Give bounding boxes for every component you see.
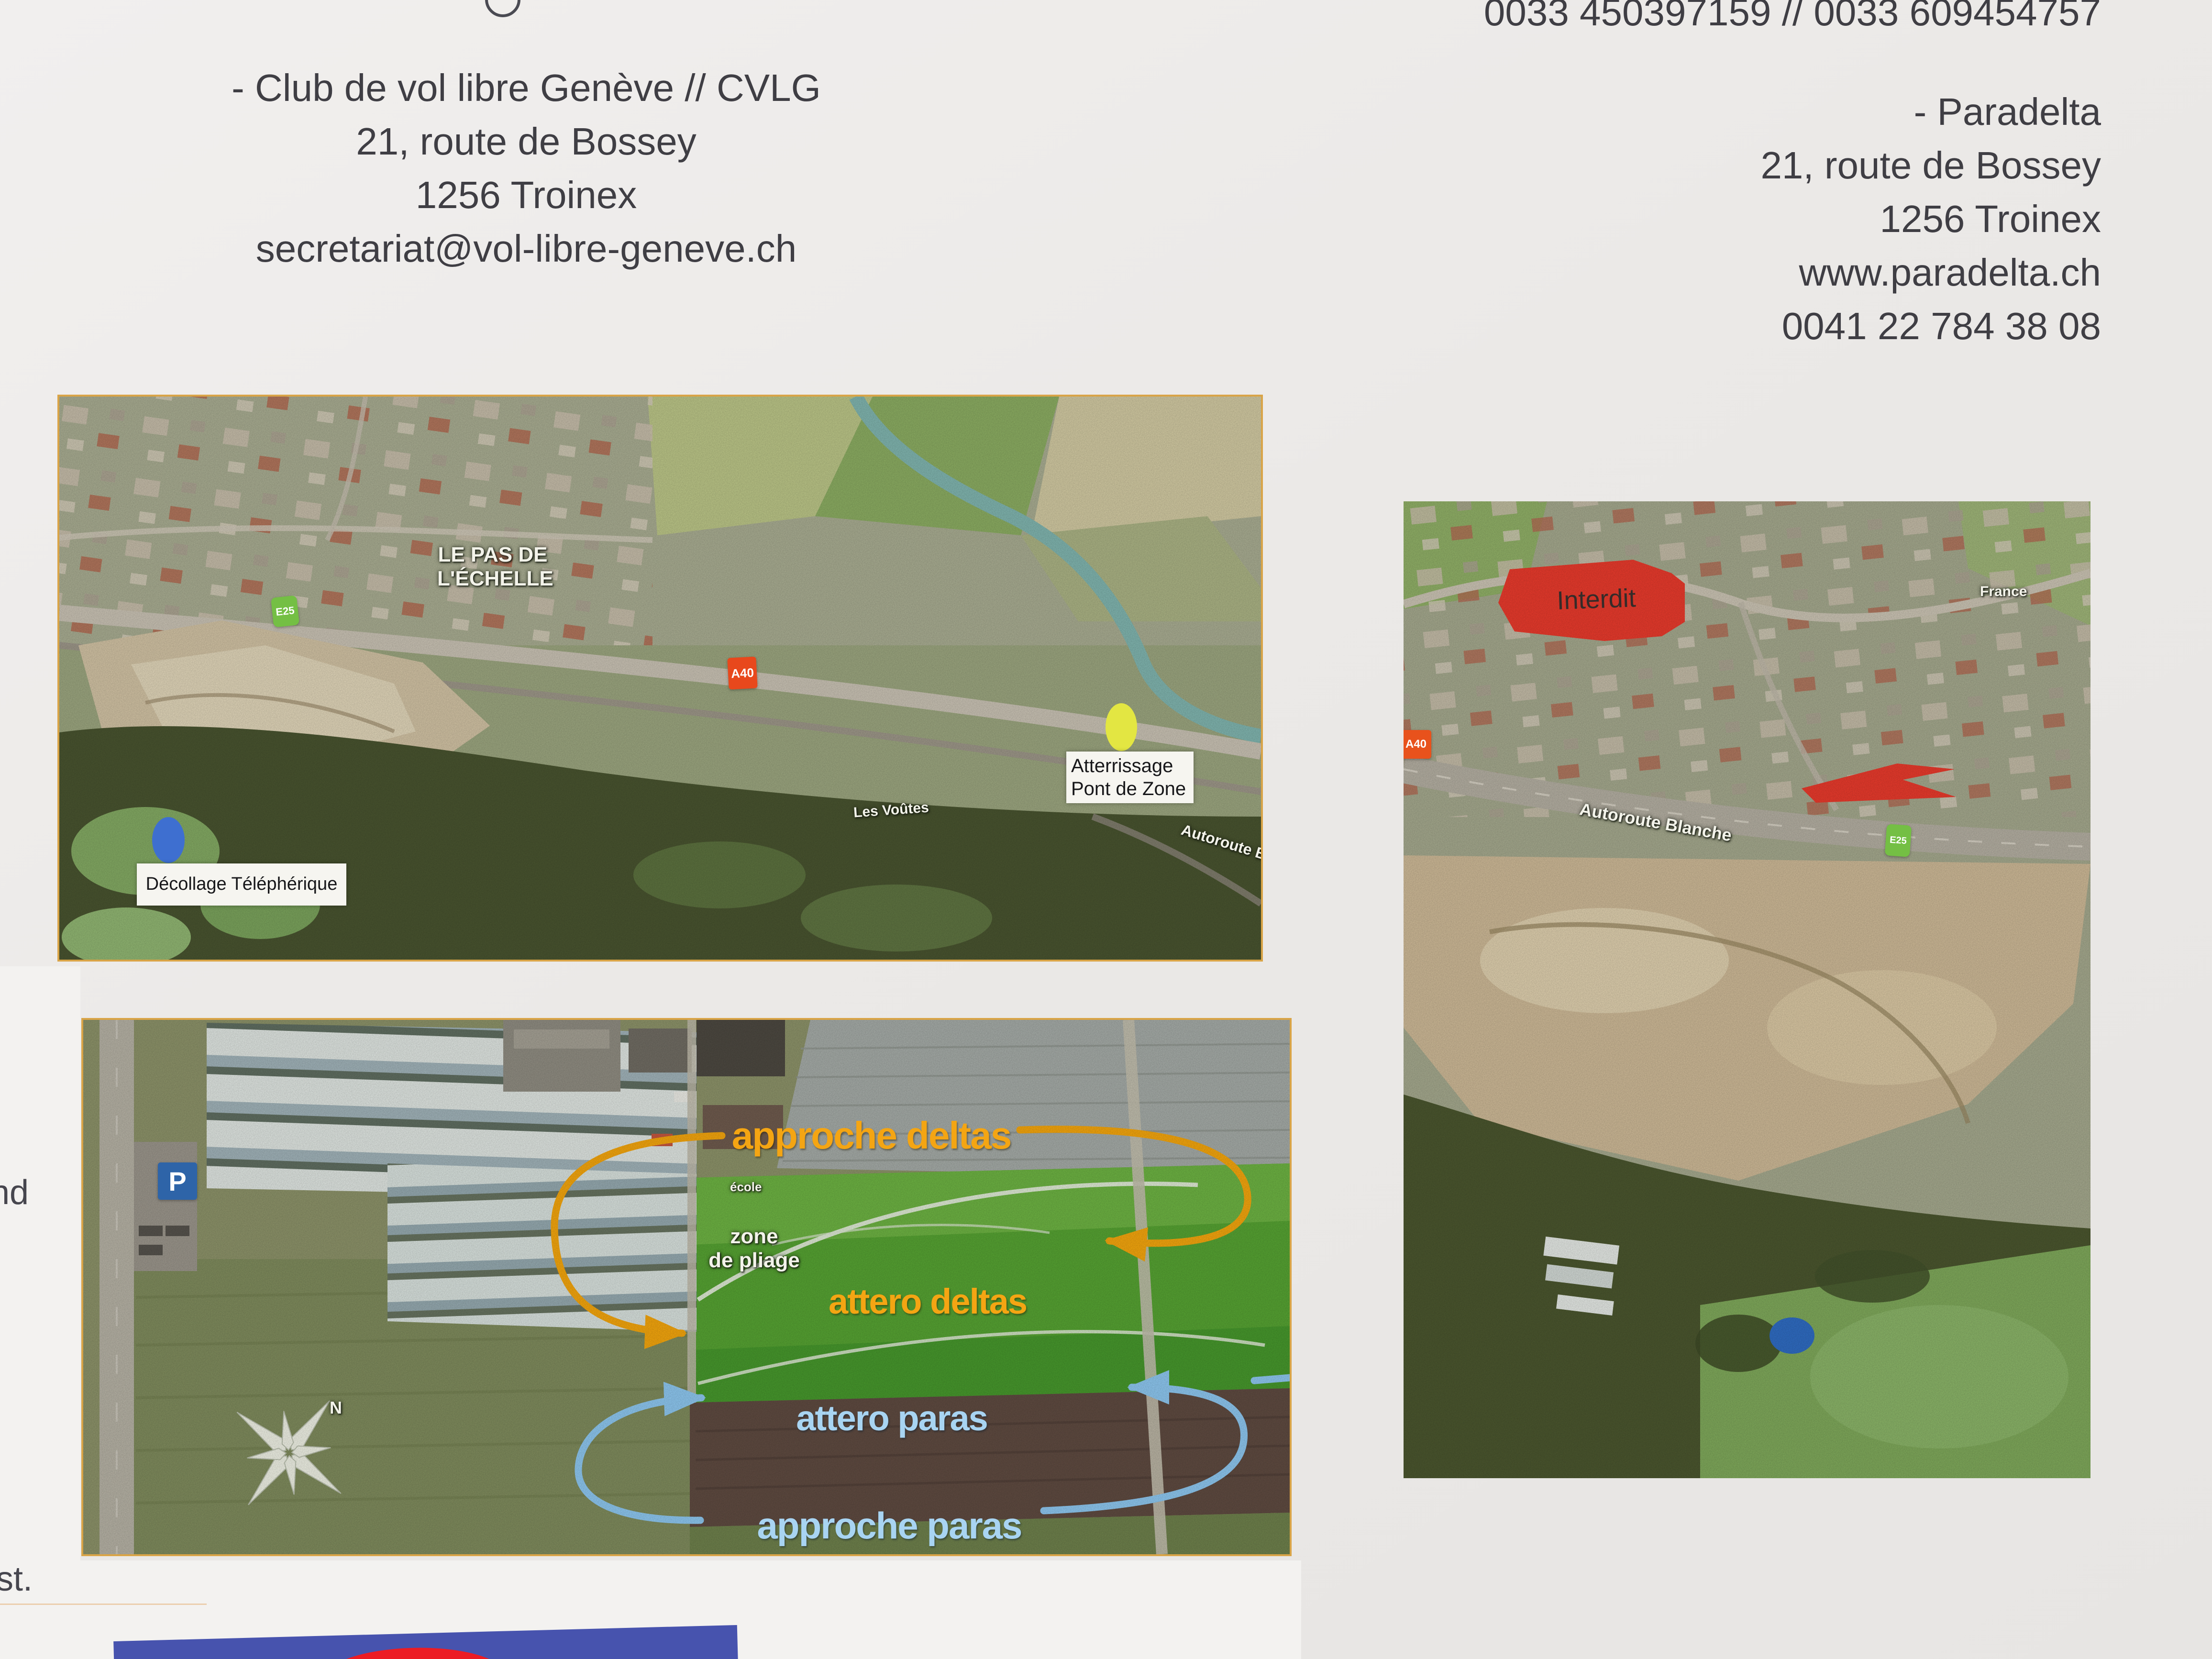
takeoff-dot-blue <box>152 817 185 863</box>
photo-board: - Club de vol libre Genève // CVLG 21, r… <box>0 0 2212 1659</box>
place-label-line2: L'ÉCHELLE <box>437 567 548 591</box>
route-marker-a40-right: A40 <box>1404 730 1431 759</box>
paradelta-city: 1256 Troinex <box>1484 192 2101 246</box>
takeoff-label-box: Décollage Téléphérique <box>137 863 346 906</box>
landing-map: P école approche deltas zone de pliage a… <box>81 1018 1292 1556</box>
approche-deltas-label: approche deltas <box>722 1114 1021 1158</box>
landing-label-line1: Atterrissage <box>1071 754 1189 777</box>
landing-dot-yellow <box>1106 703 1137 751</box>
cvlg-city: 1256 Troinex <box>177 168 875 222</box>
approche-paras-label: approche paras <box>753 1504 1026 1548</box>
paper-margin-left <box>0 966 80 1659</box>
cvlg-street: 21, route de Bossey <box>177 115 875 168</box>
cvlg-email: secretariat@vol-libre-geneve.ch <box>177 222 875 276</box>
restricted-map: Interdit France A40 Autoroute Blanche E2… <box>1404 501 2090 1478</box>
place-label-line1: LE PAS DE <box>437 543 548 567</box>
zone-pliage-line2: de pliage <box>703 1249 806 1272</box>
attero-paras-label: attero paras <box>782 1398 1002 1438</box>
banner-red-oval <box>320 1646 508 1659</box>
paradelta-street: 21, route de Bossey <box>1484 139 2101 192</box>
paradelta-phone-ch: 0041 22 784 38 08 <box>1484 299 2101 353</box>
cutoff-underline <box>0 1604 207 1605</box>
route-marker-e25: E25 <box>271 595 299 627</box>
interdit-label: Interdit <box>1526 582 1666 617</box>
landing-map-art <box>83 1020 1290 1554</box>
cutoff-text-top: nd <box>0 1173 29 1212</box>
route-marker-e25-right: E25 <box>1885 824 1912 857</box>
cutoff-logo-circle <box>485 0 520 17</box>
paradelta-contact-block: 0033 450397159 // 0033 609454757 - Parad… <box>1484 0 2101 353</box>
cvlg-contact-block: - Club de vol libre Genève // CVLG 21, r… <box>177 61 875 276</box>
cutoff-text-bottom: st. <box>0 1559 33 1599</box>
overview-map: LE PAS DE L'ÉCHELLE E25 A40 Atterrissage… <box>57 395 1263 962</box>
landing-label-box: Atterrissage Pont de Zone <box>1066 752 1194 803</box>
france-label: France <box>1980 584 2027 600</box>
place-label: LE PAS DE L'ÉCHELLE <box>437 543 548 591</box>
paradelta-name: - Paradelta <box>1484 85 2101 139</box>
takeoff-label: Décollage Téléphérique <box>146 874 338 896</box>
zone-pliage-line1: zone <box>703 1225 806 1249</box>
ecole-roof-label: école <box>730 1180 762 1194</box>
cvlg-name: - Club de vol libre Genève // CVLG <box>177 61 875 115</box>
route-marker-a40: A40 <box>727 656 757 689</box>
paradelta-web: www.paradelta.ch <box>1484 246 2101 299</box>
attero-deltas-label: attero deltas <box>815 1281 1040 1322</box>
paradelta-phones: 0033 450397159 // 0033 609454757 <box>1484 0 2101 39</box>
restricted-map-art <box>1404 501 2090 1478</box>
compass-north-label: N <box>330 1398 342 1418</box>
zone-pliage-label: zone de pliage <box>703 1225 806 1272</box>
parking-sign: P <box>158 1162 197 1200</box>
landing-label-line2: Pont de Zone <box>1071 777 1189 800</box>
